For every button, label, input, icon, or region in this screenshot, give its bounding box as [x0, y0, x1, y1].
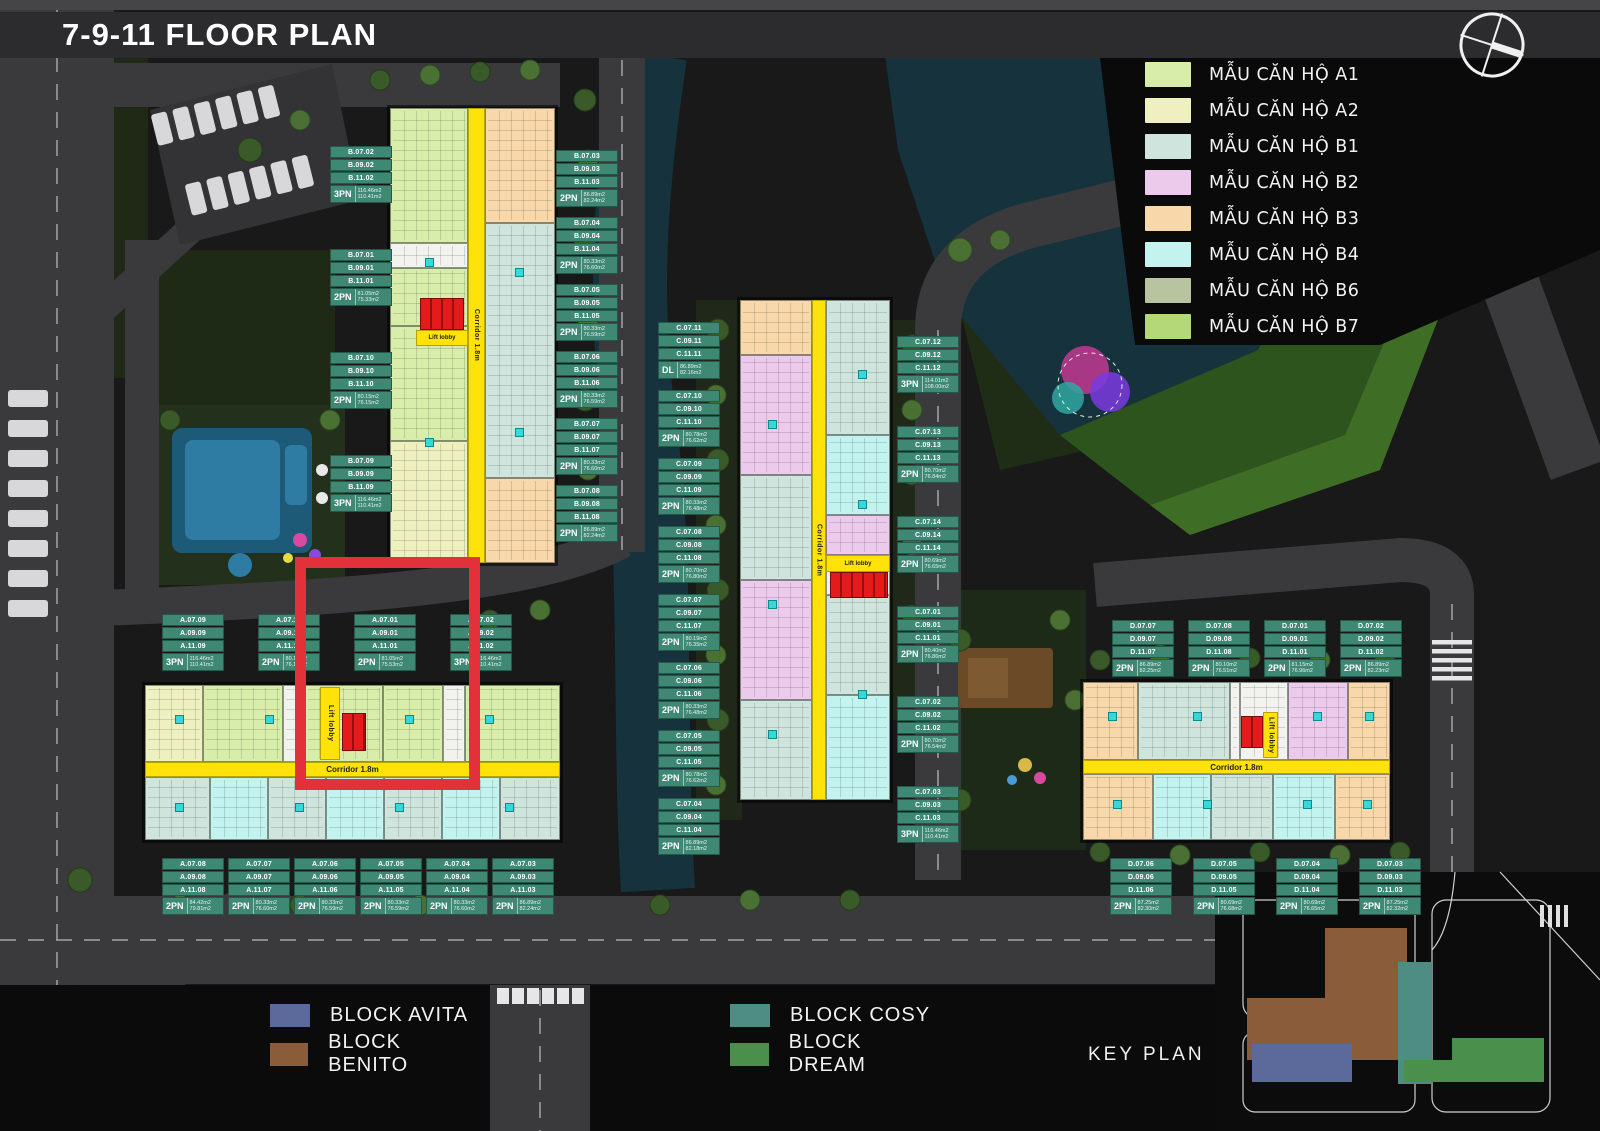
unit-cell	[826, 300, 890, 435]
legend-item: MẪU CĂN HỘ B2	[1145, 170, 1359, 195]
unit-areas: 80.70m2 76.80m2	[683, 566, 719, 582]
unit-marker	[1193, 712, 1202, 721]
unit-code: D.11.06	[1110, 884, 1172, 896]
unit-meta: 2PN 80.15m2 76.15m2	[330, 391, 392, 409]
lift-lobby: Lift lobby	[416, 330, 468, 346]
label-group-avita-bottom: A.07.08 A.09.08 A.11.08 2PN 84.42m2 79.8…	[162, 858, 554, 915]
legend-label: MẪU CĂN HỘ A2	[1209, 101, 1359, 121]
unit-type: 2PN	[1194, 898, 1218, 914]
unit-type: 2PN	[557, 257, 581, 273]
unit-area-net: 76.51m2	[1216, 668, 1247, 674]
unit-areas: 116.46m2 110.41m2	[355, 495, 391, 511]
unit-code: D.09.08	[1188, 633, 1250, 645]
unit-cell	[826, 595, 890, 695]
unit-areas: 81.05m2 75.33m2	[355, 289, 391, 305]
unit-code: B.07.06	[556, 351, 618, 363]
unit-type: 2PN	[557, 391, 581, 407]
unit-meta: 3PN 116.46m2 110.41m2	[330, 185, 392, 203]
unit-type: 3PN	[898, 376, 922, 392]
unit-type: 2PN	[331, 392, 355, 408]
unit-label-tag: B.07.08 B.09.08 B.11.08 2PN 86.89m2 82.2…	[556, 485, 618, 542]
unit-cell	[145, 685, 203, 762]
unit-label-tag: A.07.08 A.09.08 A.11.08 2PN 84.42m2 79.8…	[162, 858, 224, 915]
unit-code: A.11.08	[162, 884, 224, 896]
unit-cell	[740, 355, 812, 475]
legend-swatch	[1145, 242, 1191, 267]
unit-code: A.11.04	[426, 884, 488, 896]
unit-code: C.11.13	[897, 452, 959, 464]
unit-label-tag: C.07.07 C.09.07 C.11.07 2PN 80.19m2 76.3…	[658, 594, 720, 651]
unit-code: B.09.04	[556, 230, 618, 242]
unit-marker	[295, 803, 304, 812]
unit-code: D.07.03	[1359, 858, 1421, 870]
unit-meta: 2PN 80.33m2 76.60m2	[228, 897, 290, 915]
unit-code: D.07.05	[1193, 858, 1255, 870]
block-legend-label: BLOCK COSY	[790, 1004, 930, 1027]
unit-label-tag: B.07.04 B.09.04 B.11.04 2PN 80.33m2 76.6…	[556, 217, 618, 274]
unit-code: A.07.05	[360, 858, 422, 870]
unit-code: A.11.09	[162, 640, 224, 652]
unit-area-net: 76.86m2	[925, 654, 956, 660]
unit-meta: 3PN 116.46m2 110.41m2	[897, 825, 959, 843]
unit-code: C.11.10	[658, 416, 720, 428]
unit-label-tag: D.07.06 D.09.06 D.11.06 2PN 87.25m2 82.3…	[1110, 858, 1172, 915]
unit-areas: 80.78m2 76.62m2	[683, 770, 719, 786]
unit-marker	[1303, 800, 1312, 809]
unit-code: C.09.08	[658, 539, 720, 551]
corridor-label: Corridor 1.8m	[816, 524, 823, 576]
unit-area-net: 76.60m2	[454, 906, 485, 912]
unit-type: 2PN	[1265, 660, 1289, 676]
unit-area-net: 76.59m2	[584, 332, 615, 338]
unit-code: B.11.03	[556, 176, 618, 188]
unit-code: D.09.01	[1264, 633, 1326, 645]
dream-north-row	[1083, 682, 1390, 760]
lift-lobby-label: Lift lobby	[429, 335, 456, 341]
lift-core	[830, 572, 888, 598]
unit-type: 2PN	[659, 566, 683, 582]
unit-meta: 2PN 80.70m2 76.54m2	[897, 735, 959, 753]
unit-code: D.07.07	[1112, 620, 1174, 632]
unit-label-tag: C.07.01 C.09.01 C.11.01 2PN 80.40m2 76.8…	[897, 606, 959, 663]
unit-marker	[768, 730, 777, 739]
unit-code: B.07.02	[330, 146, 392, 158]
unit-areas: 80.33m2 76.59m2	[385, 898, 421, 914]
unit-areas: 80.19m2 76.35m2	[683, 634, 719, 650]
unit-area-net: 76.35m2	[686, 642, 717, 648]
unit-label-tag: B.07.09 B.09.09 B.11.09 3PN 116.46m2 110…	[330, 455, 392, 512]
page-title: 7-9-11 FLOOR PLAN	[62, 17, 377, 53]
unit-code: C.07.13	[897, 426, 959, 438]
block-legend: BLOCK AVITA BLOCK BENITO BLOCK COSY BLOC…	[270, 1003, 940, 1066]
unit-area-net: 82.25m2	[1140, 668, 1171, 674]
unit-type: 2PN	[1277, 898, 1301, 914]
unit-code: C.09.14	[897, 529, 959, 541]
unit-type: 2PN	[1341, 660, 1365, 676]
unit-code: D.07.02	[1340, 620, 1402, 632]
unit-meta: 2PN 80.69m2 76.68m2	[1193, 897, 1255, 915]
unit-label-tag: C.07.11 C.09.11 C.11.11 DL 86.89m2 82.16…	[658, 322, 720, 379]
unit-code: D.07.01	[1264, 620, 1326, 632]
unit-label-tag: D.07.07 D.09.07 D.11.07 2PN 86.89m2 82.2…	[1112, 620, 1174, 677]
unit-label-tag: A.07.07 A.09.07 A.11.07 2PN 80.33m2 76.6…	[228, 858, 290, 915]
unit-code: C.11.02	[897, 722, 959, 734]
legend-label: MẪU CĂN HỘ A1	[1209, 65, 1359, 85]
unit-type: 2PN	[659, 430, 683, 446]
unit-area-net: 76.65m2	[1304, 906, 1335, 912]
unit-meta: 2PN 80.69m2 76.65m2	[897, 555, 959, 573]
unit-type: 3PN	[331, 495, 355, 511]
unit-marker	[768, 600, 777, 609]
unit-area-net: 76.96m2	[1292, 668, 1323, 674]
legend-item: MẪU CĂN HỘ B4	[1145, 242, 1359, 267]
unit-area-net: 76.60m2	[584, 466, 615, 472]
unit-meta: 2PN 80.70m2 76.80m2	[658, 565, 720, 583]
unit-code: C.09.11	[658, 335, 720, 347]
building-cosy: Corridor 1.8m Lift lobby	[740, 300, 890, 800]
unit-meta: 2PN 80.33m2 76.48m2	[658, 497, 720, 515]
unit-cell	[1288, 682, 1348, 760]
legend-item: MẪU CĂN HỘ B3	[1145, 206, 1359, 231]
unit-areas: 80.33m2 76.48m2	[683, 702, 719, 718]
unit-code: D.11.05	[1193, 884, 1255, 896]
unit-code: C.09.07	[658, 607, 720, 619]
unit-area-net: 76.59m2	[388, 906, 419, 912]
unit-label-tag: A.07.04 A.09.04 A.11.04 2PN 80.33m2 76.6…	[426, 858, 488, 915]
unit-code: C.09.05	[658, 743, 720, 755]
unit-areas: 84.42m2 79.81m2	[187, 898, 223, 914]
unit-code: C.11.06	[658, 688, 720, 700]
unit-meta: 2PN 80.70m2 76.84m2	[897, 465, 959, 483]
unit-code: A.07.04	[426, 858, 488, 870]
unit-label-tag: D.07.08 D.09.08 D.11.08 2PN 80.10m2 76.5…	[1188, 620, 1250, 677]
unit-area-net: 76.59m2	[584, 399, 615, 405]
unit-code: C.07.05	[658, 730, 720, 742]
unit-code: D.11.07	[1112, 646, 1174, 658]
unit-code: B.09.06	[556, 364, 618, 376]
unit-code: A.11.07	[228, 884, 290, 896]
unit-code: B.11.10	[330, 378, 392, 390]
unit-code: D.09.07	[1112, 633, 1174, 645]
unit-code: B.07.01	[330, 249, 392, 261]
unit-code: C.07.10	[658, 390, 720, 402]
unit-meta: 2PN 86.89m2 82.24m2	[556, 189, 618, 207]
unit-code: A.09.03	[492, 871, 554, 883]
unit-cell	[740, 580, 812, 700]
unit-area-net: 76.62m2	[686, 778, 717, 784]
unit-code: D.11.01	[1264, 646, 1326, 658]
unit-cell	[485, 223, 555, 478]
unit-type: 2PN	[1111, 898, 1135, 914]
unit-meta: 2PN 80.33m2 76.59m2	[294, 897, 356, 915]
unit-type: 3PN	[331, 186, 355, 202]
unit-areas: 80.10m2 76.51m2	[1213, 660, 1249, 676]
unit-cell	[826, 515, 890, 555]
unit-meta: 3PN 116.46m2 110.41m2	[162, 653, 224, 671]
unit-code: C.11.04	[658, 824, 720, 836]
unit-meta: 2PN 86.89m2 82.18m2	[658, 837, 720, 855]
unit-areas: 87.25m2 82.32m2	[1384, 898, 1420, 914]
unit-type: 2PN	[659, 634, 683, 650]
unit-type: 2PN	[557, 458, 581, 474]
unit-code: A.07.06	[294, 858, 356, 870]
unit-areas: 114.01m2 108.00m2	[922, 376, 958, 392]
corridor-label: Corridor 1.8m	[1210, 763, 1262, 772]
unit-area-net: 110.41m2	[925, 834, 956, 840]
unit-cell	[740, 475, 812, 580]
unit-areas: 80.69m2 76.65m2	[922, 556, 958, 572]
unit-label-tag: A.07.06 A.09.06 A.11.06 2PN 80.33m2 76.5…	[294, 858, 356, 915]
legend-label: MẪU CĂN HỘ B2	[1209, 173, 1359, 193]
unit-code: B.07.10	[330, 352, 392, 364]
unit-type: 2PN	[295, 898, 319, 914]
label-group-benito-right: B.07.03 B.09.03 B.11.03 2PN 86.89m2 82.2…	[556, 150, 618, 542]
unit-code: A.11.06	[294, 884, 356, 896]
unit-meta: 2PN 80.33m2 76.60m2	[556, 256, 618, 274]
unit-type: 2PN	[898, 556, 922, 572]
unit-marker	[1363, 800, 1372, 809]
unit-areas: 80.15m2 76.15m2	[355, 392, 391, 408]
legend-swatch	[1145, 62, 1191, 87]
unit-area-net: 110.41m2	[358, 194, 389, 200]
unit-type: 2PN	[557, 324, 581, 340]
unit-code: C.11.01	[897, 632, 959, 644]
unit-code: C.07.04	[658, 798, 720, 810]
unit-areas: 80.78m2 76.62m2	[683, 430, 719, 446]
block-legend-swatch	[730, 1043, 769, 1066]
unit-code: B.11.09	[330, 481, 392, 493]
unit-area-net: 76.80m2	[686, 574, 717, 580]
unit-area-net: 110.41m2	[358, 503, 389, 509]
unit-meta: 2PN 80.19m2 76.35m2	[658, 633, 720, 651]
unit-code: A.07.09	[162, 614, 224, 626]
unit-code: B.07.08	[556, 485, 618, 497]
unit-code: D.11.03	[1359, 884, 1421, 896]
unit-code: C.07.02	[897, 696, 959, 708]
unit-code: B.07.03	[556, 150, 618, 162]
unit-cell	[1211, 774, 1273, 840]
unit-areas: 80.33m2 76.60m2	[451, 898, 487, 914]
unit-code: A.07.03	[492, 858, 554, 870]
unit-label-tag: C.07.08 C.09.08 C.11.08 2PN 80.70m2 76.8…	[658, 526, 720, 583]
unit-cell	[390, 441, 468, 563]
unit-area-net: 82.24m2	[584, 533, 615, 539]
unit-marker	[515, 268, 524, 277]
unit-areas: 86.89m2 82.24m2	[581, 525, 617, 541]
unit-code: B.07.09	[330, 455, 392, 467]
stair-core	[1230, 682, 1240, 760]
unit-code: D.11.04	[1276, 884, 1338, 896]
unit-code: C.11.05	[658, 756, 720, 768]
legend-swatch	[1145, 98, 1191, 123]
corridor: Corridor 1.8m	[468, 108, 485, 563]
unit-code: C.09.06	[658, 675, 720, 687]
unit-cell	[740, 300, 812, 355]
unit-meta: 2PN 80.33m2 76.48m2	[658, 701, 720, 719]
unit-area-net: 76.54m2	[925, 744, 956, 750]
unit-type: 2PN	[659, 838, 683, 854]
unit-code: D.09.03	[1359, 871, 1421, 883]
legend-swatch	[1145, 206, 1191, 231]
unit-label-tag: C.07.14 C.09.14 C.11.14 2PN 80.69m2 76.6…	[897, 516, 959, 573]
key-plan-label: KEY PLAN	[1088, 1044, 1205, 1066]
unit-type: 2PN	[898, 736, 922, 752]
unit-areas: 80.33m2 76.60m2	[581, 257, 617, 273]
unit-code: C.11.14	[897, 542, 959, 554]
unit-code: C.09.01	[897, 619, 959, 631]
block-legend-item: BLOCK COSY	[730, 1003, 940, 1027]
unit-type: 3PN	[163, 654, 187, 670]
unit-code: B.09.10	[330, 365, 392, 377]
unit-code: B.11.07	[556, 444, 618, 456]
unit-type: 2PN	[557, 525, 581, 541]
unit-label-tag: D.07.04 D.09.04 D.11.04 2PN 80.69m2 76.6…	[1276, 858, 1338, 915]
unit-marker	[425, 258, 434, 267]
unit-code: D.09.06	[1110, 871, 1172, 883]
unit-code: C.11.08	[658, 552, 720, 564]
unit-label-tag: C.07.06 C.09.06 C.11.06 2PN 80.33m2 76.4…	[658, 662, 720, 719]
unit-label-tag: A.07.05 A.09.05 A.11.05 2PN 80.33m2 76.5…	[360, 858, 422, 915]
unit-code: B.09.01	[330, 262, 392, 274]
unit-code: A.09.05	[360, 871, 422, 883]
unit-code: B.09.03	[556, 163, 618, 175]
floor-plan-canvas: Corridor 1.8m Lift lobby Corridor 1.8m	[0, 0, 1600, 1131]
cosy-west-wing	[740, 300, 812, 800]
unit-meta: 2PN 86.89m2 82.24m2	[492, 897, 554, 915]
block-legend-label: BLOCK BENITO	[328, 1031, 480, 1077]
unit-meta: 2PN 80.78m2 76.62m2	[658, 429, 720, 447]
unit-code: B.09.02	[330, 159, 392, 171]
unit-marker	[505, 803, 514, 812]
lift-lobby-label: Lift lobby	[1268, 717, 1274, 754]
unit-area-net: 76.48m2	[686, 710, 717, 716]
unit-code: A.09.06	[294, 871, 356, 883]
unit-code: B.09.08	[556, 498, 618, 510]
unit-area-net: 76.65m2	[925, 564, 956, 570]
unit-area-net: 76.48m2	[686, 506, 717, 512]
unit-marker	[1203, 800, 1212, 809]
unit-type: 2PN	[361, 898, 385, 914]
unit-code: D.07.04	[1276, 858, 1338, 870]
unit-label-tag: B.07.07 B.09.07 B.11.07 2PN 80.33m2 76.6…	[556, 418, 618, 475]
unit-type: 2PN	[427, 898, 451, 914]
unit-label-tag: C.07.13 C.09.13 C.11.13 2PN 80.70m2 76.8…	[897, 426, 959, 483]
unit-meta: 2PN 86.89m2 82.25m2	[1112, 659, 1174, 677]
unit-marker	[515, 428, 524, 437]
unit-area-net: 76.68m2	[1221, 906, 1252, 912]
unit-area-net: 76.59m2	[322, 906, 353, 912]
unit-type: 2PN	[1189, 660, 1213, 676]
unit-code: C.09.10	[658, 403, 720, 415]
unit-meta: 2PN 80.33m2 76.60m2	[426, 897, 488, 915]
unit-area-net: 82.24m2	[584, 198, 615, 204]
unit-code: C.07.11	[658, 322, 720, 334]
unit-label-tag: C.07.05 C.09.05 C.11.05 2PN 80.78m2 76.6…	[658, 730, 720, 787]
unit-code: C.11.03	[897, 812, 959, 824]
unit-label-tag: B.07.05 B.09.05 B.11.05 2PN 80.33m2 76.5…	[556, 284, 618, 341]
block-legend-item: BLOCK DREAM	[730, 1042, 940, 1066]
unit-label-tag: C.07.09 C.09.09 C.11.09 2PN 80.33m2 76.4…	[658, 458, 720, 515]
unit-code: B.11.08	[556, 511, 618, 523]
unit-label-tag: B.07.03 B.09.03 B.11.03 2PN 86.89m2 82.2…	[556, 150, 618, 207]
unit-code: A.09.08	[162, 871, 224, 883]
unit-marker	[395, 803, 404, 812]
unit-area-net: 82.32m2	[1387, 906, 1418, 912]
corridor: Corridor 1.8m	[1083, 760, 1390, 774]
unit-meta: 2PN 80.33m2 76.59m2	[556, 390, 618, 408]
unit-code: D.09.05	[1193, 871, 1255, 883]
unit-cell	[1083, 682, 1138, 760]
unit-type: 2PN	[229, 898, 253, 914]
unit-type-legend: MẪU CĂN HỘ A1 MẪU CĂN HỘ A2 MẪU CĂN HỘ B…	[1145, 62, 1359, 350]
unit-area-net: 82.30m2	[1138, 906, 1169, 912]
unit-code: D.11.08	[1188, 646, 1250, 658]
unit-code: B.07.07	[556, 418, 618, 430]
unit-label-tag: C.07.03 C.09.03 C.11.03 3PN 116.46m2 110…	[897, 786, 959, 843]
unit-marker	[858, 690, 867, 699]
unit-code: D.09.02	[1340, 633, 1402, 645]
unit-meta: 2PN 80.10m2 76.51m2	[1188, 659, 1250, 677]
unit-meta: 2PN 86.89m2 82.24m2	[556, 524, 618, 542]
unit-areas: 80.33m2 76.60m2	[253, 898, 289, 914]
unit-areas: 80.33m2 76.59m2	[581, 324, 617, 340]
block-legend-item: BLOCK AVITA	[270, 1003, 480, 1027]
unit-type: 2PN	[1113, 660, 1137, 676]
unit-areas: 86.89m2 82.24m2	[517, 898, 553, 914]
label-group-benito-left: B.07.02 B.09.02 B.11.02 3PN 116.46m2 110…	[330, 146, 392, 512]
unit-marker	[858, 370, 867, 379]
unit-meta: DL 86.89m2 82.16m2	[658, 361, 720, 379]
unit-code: B.11.02	[330, 172, 392, 184]
unit-label-tag: C.07.04 C.09.04 C.11.04 2PN 86.89m2 82.1…	[658, 798, 720, 855]
label-group-dream-top: D.07.07 D.09.07 D.11.07 2PN 86.89m2 82.2…	[1112, 620, 1402, 677]
unit-areas: 116.46m2 110.41m2	[922, 826, 958, 842]
unit-cell	[485, 478, 555, 563]
unit-area-net: 110.41m2	[190, 662, 221, 668]
unit-area-net: 76.60m2	[256, 906, 287, 912]
corridor: Corridor 1.8m	[812, 300, 826, 800]
unit-code: C.09.12	[897, 349, 959, 361]
unit-area-net: 82.24m2	[520, 906, 551, 912]
unit-area-net: 82.23m2	[1368, 668, 1399, 674]
lift-core	[420, 298, 464, 330]
unit-areas: 80.70m2 76.54m2	[922, 736, 958, 752]
unit-marker	[485, 715, 494, 724]
unit-code: C.11.09	[658, 484, 720, 496]
unit-meta: 2PN 81.05m2 75.33m2	[330, 288, 392, 306]
unit-area-net: 76.15m2	[358, 400, 389, 406]
unit-type: 2PN	[898, 646, 922, 662]
unit-marker	[175, 715, 184, 724]
unit-code: B.09.09	[330, 468, 392, 480]
block-legend-swatch	[270, 1004, 310, 1027]
unit-meta: 2PN 84.42m2 79.81m2	[162, 897, 224, 915]
unit-code: C.07.01	[897, 606, 959, 618]
unit-cell	[390, 108, 468, 243]
legend-item: MẪU CĂN HỘ A1	[1145, 62, 1359, 87]
unit-areas: 81.15m2 76.96m2	[1289, 660, 1325, 676]
unit-code: C.07.12	[897, 336, 959, 348]
unit-type: 2PN	[331, 289, 355, 305]
unit-type: 3PN	[898, 826, 922, 842]
unit-areas: 80.33m2 76.59m2	[581, 391, 617, 407]
unit-area-net: 108.00m2	[925, 384, 956, 390]
lift-core	[1241, 716, 1264, 748]
unit-code: B.11.04	[556, 243, 618, 255]
block-legend-swatch	[730, 1004, 770, 1027]
unit-code: B.09.05	[556, 297, 618, 309]
legend-swatch	[1145, 314, 1191, 339]
